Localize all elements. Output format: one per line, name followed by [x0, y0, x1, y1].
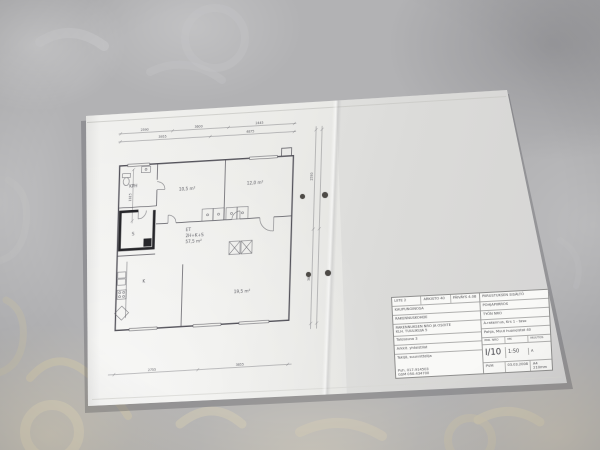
room-label-living: 19,5 m²: [234, 288, 251, 294]
scale-value: 1:50: [506, 347, 529, 356]
top-dimension-labels: 2590 3600 2445 3955 4875: [140, 121, 263, 140]
bottom-dimension-line: [108, 363, 292, 377]
right-dimension-lines: [309, 126, 324, 329]
floor-plan-drawing: 2590 3600 2445 3955 4875 2755 3655 2590: [94, 109, 336, 390]
interior-walls: [115, 156, 293, 331]
bottom-dimension-labels: 2755 3655: [148, 362, 244, 372]
dim-label: 1815: [128, 193, 132, 201]
title-block: LIITE 2 ARKISTO 40 PÄIVÄYS 4.08 KAUPUNGI…: [391, 289, 553, 379]
title-block-left-column: LIITE 2 ARKISTO 40 PÄIVÄYS 4.08 KAUPUNGI…: [392, 293, 484, 377]
punch-hole: [306, 272, 311, 277]
designer-field: Tekijä, suunnittelija Puh. 017-914503 GS…: [395, 350, 483, 378]
hall-closets: [229, 240, 252, 254]
date-row: PVM 03.03.2008 A4 210mm: [484, 360, 552, 374]
right-dimension-labels: 2590 3600: [307, 172, 314, 281]
room-label-bedroom1: 10,5 m²: [179, 186, 196, 192]
sheet-size: A4 210mm: [531, 360, 552, 371]
dim-label: 2445: [255, 121, 263, 125]
punch-hole: [322, 192, 328, 198]
apartment-area-label: 57,5 m²: [185, 238, 202, 244]
punch-hole: [325, 270, 331, 276]
wardrobes: [202, 206, 248, 221]
date-value: 03.03.2008: [505, 361, 531, 372]
title-block-right-column: PIIRUSTUKSEN SISÄLTÖ POHJAPIIRROS TYÖN N…: [480, 290, 552, 373]
title-block-cell: ARKISTO 40: [421, 295, 451, 305]
date-label: PVM: [484, 362, 506, 373]
room-label-hall: ET: [186, 227, 192, 232]
scale-label: MK: [505, 336, 528, 343]
revision-label: MUUTOS: [528, 335, 550, 342]
dim-label: 2755: [148, 368, 156, 372]
revision-value: A: [529, 347, 551, 354]
punch-hole: [300, 194, 305, 199]
title-block-cell: LIITE 2: [392, 296, 422, 306]
title-block-cell: PÄIVÄYS 4.08: [451, 293, 480, 302]
sauna-walls: [119, 210, 154, 250]
dim-label: 3600: [195, 124, 203, 128]
dim-label: 3955: [158, 135, 166, 139]
room-labels: KPH S 10,5 m² 12,0 m² ET 2H+K+S 57,5 m² …: [126, 175, 264, 300]
outer-walls: [115, 148, 294, 331]
room-label-kph: KPH: [129, 183, 138, 189]
dim-label: 2590: [310, 172, 314, 180]
sauna-stove: [143, 238, 151, 247]
photo-scene: 2590 3600 2445 3955 4875 2755 3655 2590: [0, 0, 600, 450]
room-label-kitchen: K: [142, 279, 145, 284]
drawing-number: I/10: [483, 347, 507, 360]
dim-label: 3655: [236, 362, 244, 366]
drawing-number-label: PIIR. NRO: [482, 337, 505, 344]
room-label-sauna: S: [132, 231, 135, 236]
dim-label: 4875: [246, 129, 254, 133]
top-dimension-lines: [118, 122, 296, 144]
dim-label: 2590: [141, 128, 149, 132]
room-label-bedroom2: 12,0 m²: [247, 179, 264, 185]
